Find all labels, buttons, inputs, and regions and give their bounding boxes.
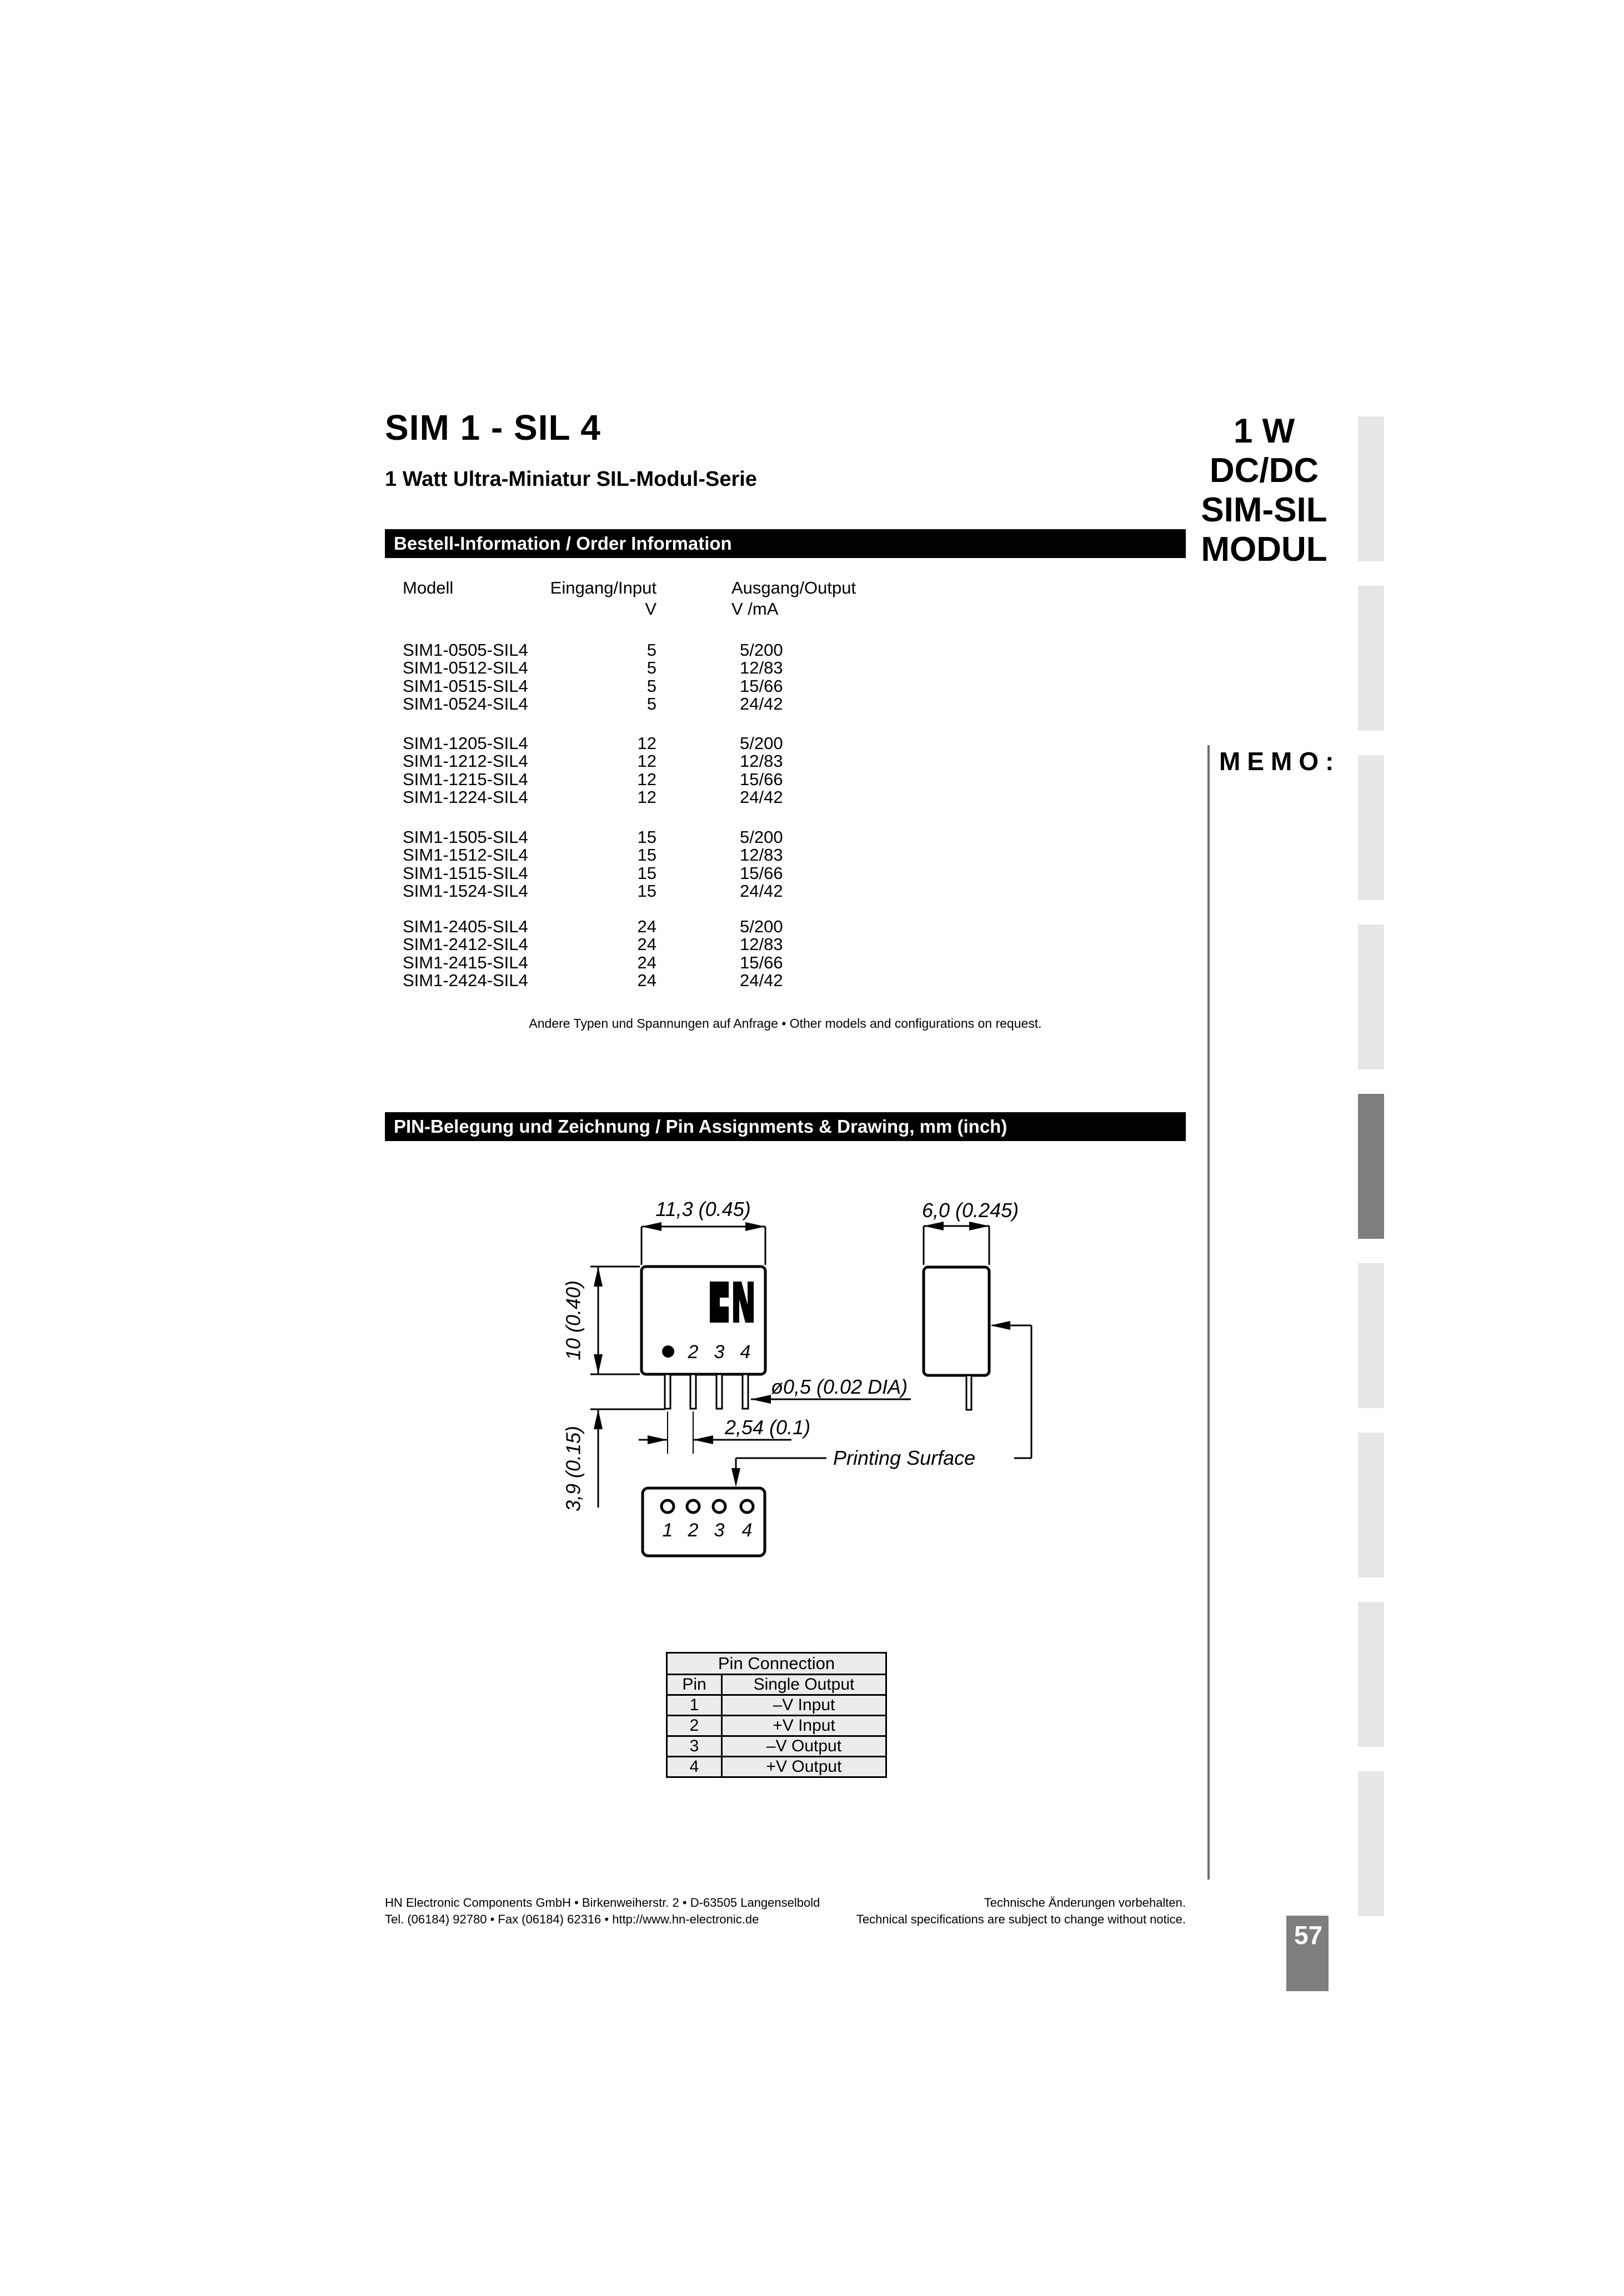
pin1-marker-dot	[662, 1345, 674, 1358]
pin-table-row: 2+V Input	[667, 1716, 886, 1736]
output-cell: 5/200	[740, 828, 783, 846]
pin-table-title: Pin Connection	[667, 1653, 886, 1675]
order-table-header-row2: V V /mA	[385, 600, 1186, 619]
input-voltage-cell: 24	[545, 935, 656, 953]
pin-number-cell: 3	[667, 1736, 722, 1757]
model-cell: SIM1-2415-SIL4	[403, 953, 528, 972]
pin-number-cell: 2	[667, 1716, 722, 1736]
side-tab	[1358, 586, 1384, 731]
order-table-row: SIM1-1505-SIL4155/200	[385, 828, 1186, 847]
dim-pin-pitch-label: 2,54 (0.1)	[724, 1416, 810, 1439]
pin-function-cell: +V Input	[722, 1716, 886, 1736]
model-cell: SIM1-2405-SIL4	[403, 917, 528, 936]
height-dimension: 10 (0.40)	[562, 1267, 640, 1374]
order-table-row: SIM1-1212-SIL41212/83	[385, 752, 1186, 771]
page-number-badge: 57	[1286, 1916, 1329, 1991]
order-table-row: SIM1-1512-SIL41512/83	[385, 846, 1186, 865]
footer-notice-de: Technische Änderungen vorbehalten.	[778, 1895, 1186, 1911]
dimension-drawing: 11,3 (0.45) 2 3 4 10 (0.40)	[555, 1188, 1144, 1610]
model-cell: SIM1-1205-SIL4	[403, 734, 528, 752]
column-header-output: Ausgang/Output	[731, 579, 856, 597]
pin-connection-table: Pin Connection Pin Single Output 1–V Inp…	[666, 1652, 887, 1778]
output-cell: 12/83	[740, 659, 783, 677]
order-table-row: SIM1-0512-SIL4512/83	[385, 659, 1186, 677]
input-voltage-cell: 5	[545, 659, 656, 677]
footer-contact-line: Tel. (06184) 92780 • Fax (06184) 62316 •…	[385, 1911, 820, 1928]
footer-notice-en: Technical specifications are subject to …	[778, 1911, 1186, 1928]
model-cell: SIM1-1515-SIL4	[403, 864, 528, 882]
dim-pin-length-label: 3,9 (0.15)	[562, 1426, 585, 1511]
pin-function-cell: –V Output	[722, 1736, 886, 1757]
pin-number-cell: 4	[667, 1757, 722, 1777]
bottom-pin-label: 2	[688, 1520, 699, 1541]
footer-notice-block: Technische Änderungen vorbehalten. Techn…	[778, 1895, 1186, 1928]
model-cell: SIM1-2424-SIL4	[403, 971, 528, 989]
input-voltage-cell: 24	[545, 971, 656, 989]
section-bar-pin-assignments: PIN-Belegung und Zeichnung / Pin Assignm…	[385, 1112, 1186, 1141]
input-voltage-cell: 15	[545, 828, 656, 846]
order-table-header-row1: Modell Eingang/Input Ausgang/Output	[385, 579, 1186, 597]
side-tab	[1358, 1771, 1384, 1916]
dim-side-width-label: 6,0 (0.245)	[922, 1199, 1019, 1222]
memo-divider-line	[1207, 745, 1210, 1880]
pin-table-col-pin: Pin	[667, 1675, 722, 1695]
output-cell: 12/83	[740, 752, 783, 770]
order-table-row: SIM1-2424-SIL42424/42	[385, 971, 1186, 990]
bottom-pin-label: 1	[663, 1520, 673, 1541]
input-voltage-cell: 12	[545, 770, 656, 788]
input-voltage-cell: 12	[545, 788, 656, 806]
order-table-row: SIM1-0524-SIL4524/42	[385, 695, 1186, 714]
model-cell: SIM1-0505-SIL4	[403, 641, 528, 659]
side-tab	[1358, 416, 1384, 561]
pin-function-cell: –V Input	[722, 1695, 886, 1716]
side-tab	[1358, 1263, 1384, 1408]
input-voltage-cell: 15	[545, 882, 656, 900]
model-cell: SIM1-1224-SIL4	[403, 788, 528, 806]
order-table-row: SIM1-1524-SIL41524/42	[385, 882, 1186, 901]
order-table-row: SIM1-1215-SIL41215/66	[385, 770, 1186, 789]
model-cell: SIM1-0515-SIL4	[403, 677, 528, 695]
page-title: SIM 1 - SIL 4	[385, 407, 601, 448]
order-table-row: SIM1-2412-SIL42412/83	[385, 935, 1186, 954]
model-cell: SIM1-0524-SIL4	[403, 695, 528, 713]
side-tab	[1358, 1433, 1384, 1577]
model-cell: SIM1-2412-SIL4	[403, 935, 528, 953]
pin-table-row: 3–V Output	[667, 1736, 886, 1757]
printing-surface-label: Printing Surface	[833, 1446, 975, 1469]
order-table-row: SIM1-1205-SIL4125/200	[385, 734, 1186, 753]
model-cell: SIM1-1512-SIL4	[403, 846, 528, 864]
footer-company-line: HN Electronic Components GmbH • Birkenwe…	[385, 1895, 820, 1911]
input-voltage-cell: 5	[545, 641, 656, 659]
side-tab	[1358, 755, 1384, 900]
output-cell: 5/200	[740, 734, 783, 752]
column-unit-input: V	[545, 600, 656, 618]
bottom-view: 1 2 3 4	[643, 1488, 765, 1556]
product-class-label: 1 W DC/DC SIM-SIL MODUL	[1177, 411, 1351, 569]
pin-table-col-output: Single Output	[722, 1675, 886, 1695]
output-cell: 12/83	[740, 846, 783, 864]
side-tab-active	[1358, 1094, 1384, 1239]
pin-number-cell: 1	[667, 1695, 722, 1716]
model-cell: SIM1-1505-SIL4	[403, 828, 528, 846]
model-cell: SIM1-1215-SIL4	[403, 770, 528, 788]
output-cell: 24/42	[740, 971, 783, 989]
pin-function-cell: +V Output	[722, 1757, 886, 1777]
footer-company-block: HN Electronic Components GmbH • Birkenwe…	[385, 1895, 820, 1928]
dim-height-label: 10 (0.40)	[562, 1280, 585, 1360]
input-voltage-cell: 15	[545, 864, 656, 882]
section-bar-order-information: Bestell-Information / Order Information	[385, 529, 1186, 558]
pin-diameter-callout: ø0,5 (0.02 DIA)	[751, 1375, 911, 1404]
output-cell: 24/42	[740, 695, 783, 713]
model-cell: SIM1-1212-SIL4	[403, 752, 528, 770]
input-voltage-cell: 15	[545, 846, 656, 864]
output-cell: 5/200	[740, 641, 783, 659]
side-view: 6,0 (0.245)	[922, 1199, 1019, 1410]
order-table-row: SIM1-2415-SIL42415/66	[385, 953, 1186, 972]
output-cell: 5/200	[740, 917, 783, 936]
column-header-input: Eingang/Input	[545, 579, 656, 597]
module-side-body	[924, 1267, 989, 1375]
order-table-row: SIM1-0505-SIL455/200	[385, 641, 1186, 660]
input-voltage-cell: 12	[545, 752, 656, 770]
dim-width-label: 11,3 (0.45)	[655, 1198, 750, 1220]
column-unit-output: V /mA	[731, 600, 778, 618]
memo-label: MEMO:	[1219, 746, 1340, 776]
input-voltage-cell: 24	[545, 917, 656, 936]
order-note: Andere Typen und Spannungen auf Anfrage …	[385, 1016, 1186, 1031]
front-pin-label: 2	[688, 1342, 699, 1363]
output-cell: 24/42	[740, 882, 783, 900]
input-voltage-cell: 5	[545, 695, 656, 713]
pin-table-row: 1–V Input	[667, 1695, 886, 1716]
model-cell: SIM1-0512-SIL4	[403, 659, 528, 677]
order-table-row: SIM1-2405-SIL4245/200	[385, 917, 1186, 936]
page-subtitle: 1 Watt Ultra-Miniatur SIL-Modul-Serie	[385, 468, 757, 491]
input-voltage-cell: 5	[545, 677, 656, 695]
dim-pin-diameter-label: ø0,5 (0.02 DIA)	[771, 1375, 908, 1398]
model-cell: SIM1-1524-SIL4	[403, 882, 528, 900]
side-tab	[1358, 925, 1384, 1069]
output-cell: 12/83	[740, 935, 783, 953]
bottom-pin-label: 4	[742, 1520, 753, 1541]
front-pin-label: 3	[714, 1342, 725, 1363]
front-pin-label: 4	[740, 1342, 751, 1363]
output-cell: 15/66	[740, 953, 783, 972]
output-cell: 15/66	[740, 864, 783, 882]
pin-table-row: 4+V Output	[667, 1757, 886, 1777]
column-header-model: Modell	[403, 579, 453, 597]
input-voltage-cell: 24	[545, 953, 656, 972]
output-cell: 15/66	[740, 677, 783, 695]
front-view: 11,3 (0.45) 2 3 4	[641, 1198, 765, 1409]
bottom-pin-label: 3	[714, 1520, 725, 1541]
pin-pitch-dimension: 2,54 (0.1)	[639, 1411, 810, 1454]
side-tab	[1358, 1602, 1384, 1747]
input-voltage-cell: 12	[545, 734, 656, 752]
order-table-row: SIM1-0515-SIL4515/66	[385, 677, 1186, 696]
output-cell: 24/42	[740, 788, 783, 806]
output-cell: 15/66	[740, 770, 783, 788]
order-table-row: SIM1-1515-SIL41515/66	[385, 864, 1186, 883]
order-table-row: SIM1-1224-SIL41224/42	[385, 788, 1186, 807]
